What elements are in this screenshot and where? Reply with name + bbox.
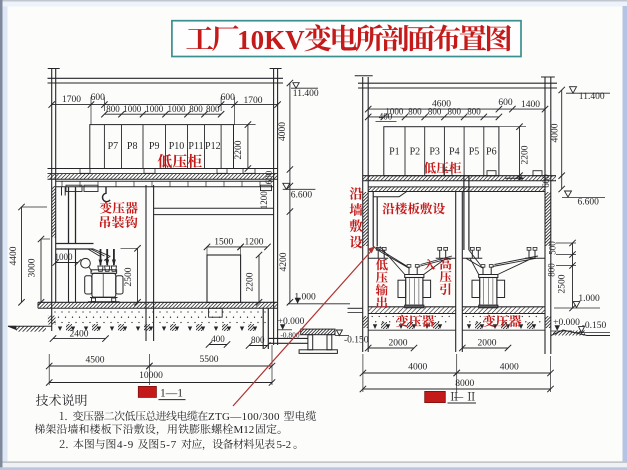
svg-text:4200: 4200: [279, 252, 289, 271]
svg-text:1000: 1000: [123, 104, 142, 114]
svg-text:1700: 1700: [62, 95, 81, 105]
svg-text:1.000: 1.000: [578, 294, 600, 304]
svg-text:800: 800: [189, 104, 203, 114]
svg-text:P8: P8: [127, 141, 138, 152]
svg-text:P4: P4: [449, 147, 460, 158]
svg-text:400: 400: [211, 334, 225, 344]
svg-text:5-7: 5-7: [160, 439, 177, 451]
svg-text:800: 800: [467, 107, 481, 117]
svg-text:800: 800: [428, 107, 442, 117]
svg-text:500: 500: [548, 241, 558, 255]
svg-text:3000: 3000: [28, 258, 38, 277]
svg-text:10KV: 10KV: [237, 25, 305, 55]
svg-text:1000: 1000: [168, 104, 187, 114]
svg-text:600: 600: [221, 93, 236, 103]
svg-text:1000: 1000: [145, 104, 164, 114]
svg-text:600: 600: [264, 170, 274, 184]
svg-text:4000: 4000: [408, 363, 427, 373]
svg-text:10000: 10000: [139, 371, 163, 381]
svg-text:11.400: 11.400: [579, 92, 605, 102]
svg-text:P1: P1: [389, 147, 400, 158]
svg-text:1700: 1700: [244, 96, 263, 106]
svg-text:1200: 1200: [259, 191, 269, 210]
svg-text:P5: P5: [469, 147, 480, 158]
svg-text:600: 600: [498, 98, 513, 108]
svg-text:800: 800: [251, 335, 265, 345]
svg-text:4500: 4500: [86, 355, 105, 365]
svg-text:5500: 5500: [200, 355, 219, 365]
svg-text:P6: P6: [486, 147, 497, 158]
svg-text:800: 800: [106, 104, 120, 114]
svg-text:1000: 1000: [385, 107, 404, 117]
svg-text:800: 800: [206, 104, 220, 114]
svg-text:600: 600: [541, 174, 551, 188]
svg-text:600: 600: [91, 93, 106, 103]
svg-text:1400: 1400: [521, 100, 540, 110]
svg-text:4000: 4000: [500, 363, 519, 373]
svg-text:4000: 4000: [551, 123, 561, 142]
svg-text:P9: P9: [149, 141, 160, 152]
svg-text:P7: P7: [108, 141, 119, 152]
svg-text:6.600: 6.600: [578, 197, 600, 207]
svg-text:8000: 8000: [455, 379, 474, 389]
svg-text:4-9: 4-9: [117, 439, 134, 451]
svg-text:4400: 4400: [9, 246, 19, 265]
svg-text:-0.150: -0.150: [344, 336, 369, 346]
svg-text:5-2: 5-2: [277, 439, 292, 451]
svg-text:2200: 2200: [234, 140, 244, 159]
svg-text:2000: 2000: [478, 339, 497, 349]
svg-text:2500: 2500: [124, 267, 134, 286]
svg-text:1500: 1500: [214, 238, 233, 248]
svg-text:2200: 2200: [245, 272, 255, 291]
svg-text:P11: P11: [188, 141, 203, 152]
svg-text:800: 800: [408, 107, 422, 117]
svg-text:P12: P12: [205, 141, 221, 152]
svg-text:2000: 2000: [389, 339, 408, 349]
svg-text:1—1: 1—1: [160, 387, 183, 399]
svg-text:800: 800: [448, 107, 462, 117]
svg-text:M12: M12: [234, 424, 255, 436]
svg-text:11.400: 11.400: [293, 89, 319, 99]
svg-text:P2: P2: [410, 147, 421, 158]
svg-text:-0.150: -0.150: [582, 321, 607, 331]
svg-text:2400: 2400: [70, 330, 89, 340]
svg-text:4000: 4000: [278, 122, 288, 141]
svg-text:1000: 1000: [55, 252, 74, 262]
svg-text:ZTG—100/300: ZTG—100/300: [208, 411, 280, 423]
svg-text:P10: P10: [169, 141, 185, 152]
svg-text:2200: 2200: [521, 145, 531, 164]
svg-text:6.600: 6.600: [291, 190, 313, 200]
svg-text:800: 800: [547, 263, 557, 277]
svg-text:2500: 2500: [558, 274, 568, 293]
svg-text:1200: 1200: [245, 238, 264, 248]
svg-text:P3: P3: [429, 147, 440, 158]
